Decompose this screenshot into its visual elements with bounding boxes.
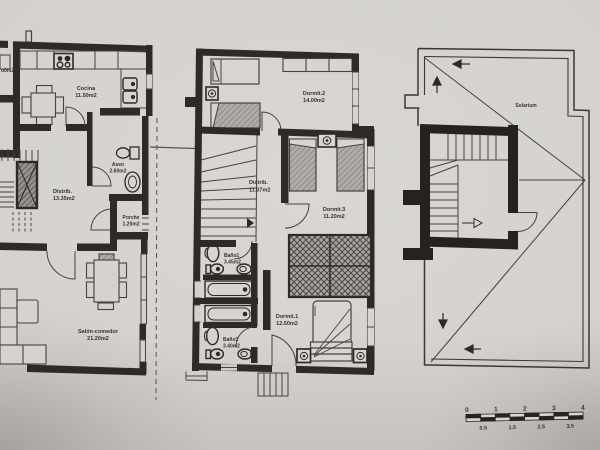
svg-text:Cocina: Cocina (77, 86, 96, 92)
svg-text:12.50m2: 12.50m2 (276, 321, 298, 327)
svg-text:Dormit.1: Dormit.1 (276, 314, 298, 320)
svg-text:13.35m2: 13.35m2 (53, 196, 75, 202)
svg-text:2: 2 (523, 406, 527, 413)
svg-text:Distrib.: Distrib. (53, 189, 72, 195)
svg-text:Solarium: Solarium (515, 103, 537, 109)
svg-text:Baño1: Baño1 (224, 253, 240, 259)
svg-text:Salón-comedor: Salón-comedor (78, 329, 119, 335)
svg-text:o0m2: o0m2 (1, 68, 14, 74)
svg-text:2.5: 2.5 (537, 424, 545, 430)
svg-text:0.5: 0.5 (479, 426, 487, 432)
svg-text:3.40m2: 3.40m2 (223, 344, 240, 350)
svg-text:11.20m2: 11.20m2 (323, 214, 344, 220)
svg-text:Porche: Porche (123, 215, 140, 221)
svg-text:Aseo: Aseo (112, 162, 124, 168)
svg-text:Dormit.2: Dormit.2 (303, 91, 325, 97)
svg-text:21.20m2: 21.20m2 (87, 336, 109, 342)
svg-text:11.50m2: 11.50m2 (75, 93, 96, 99)
svg-text:3.5: 3.5 (566, 424, 574, 430)
svg-text:Dormit.3: Dormit.3 (323, 207, 345, 213)
svg-text:1.20m2: 1.20m2 (123, 222, 140, 228)
svg-text:14.00m2: 14.00m2 (303, 98, 325, 104)
svg-text:1.5: 1.5 (508, 425, 516, 431)
svg-text:3: 3 (552, 405, 556, 412)
svg-text:11.37m2: 11.37m2 (249, 188, 270, 194)
svg-text:Baño1: Baño1 (223, 337, 239, 343)
svg-text:1: 1 (494, 406, 498, 413)
svg-text:Distrib.: Distrib. (249, 180, 268, 186)
svg-text:2.60m2: 2.60m2 (110, 169, 127, 175)
svg-text:dero: dero (0, 97, 11, 103)
svg-text:4: 4 (581, 405, 585, 412)
svg-text:3.45m2: 3.45m2 (224, 260, 241, 266)
svg-text:0: 0 (465, 407, 469, 414)
